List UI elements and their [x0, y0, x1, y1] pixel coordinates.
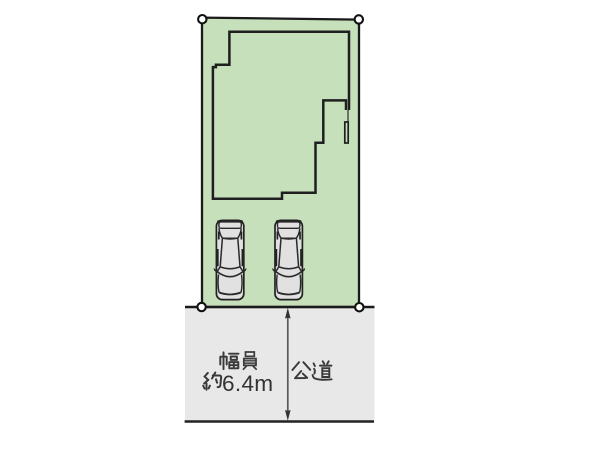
svg-text:6.4m: 6.4m	[222, 371, 273, 396]
